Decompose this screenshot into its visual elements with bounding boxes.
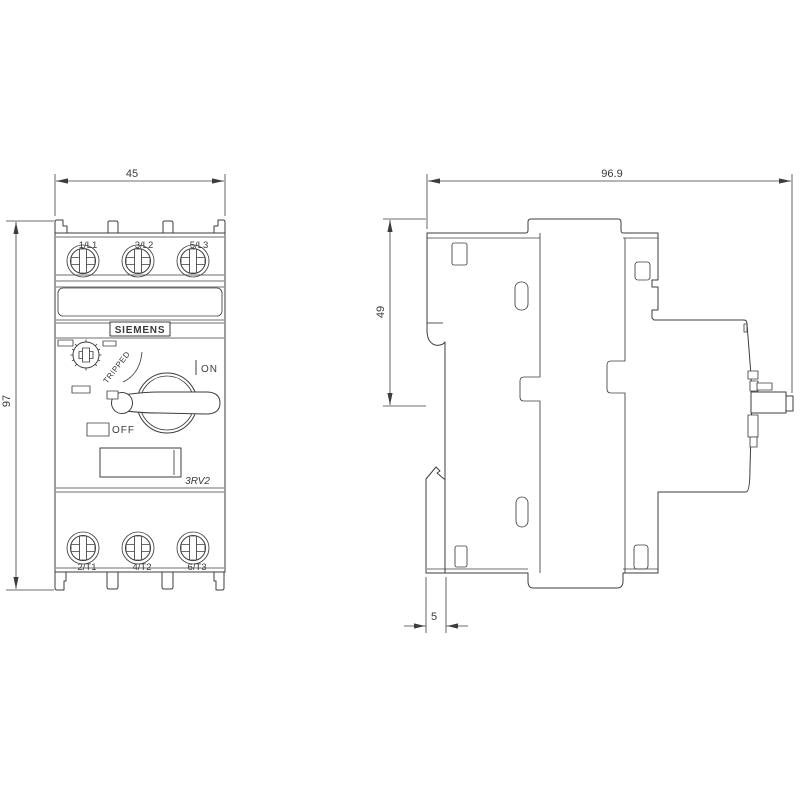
molding-hole [452, 243, 467, 265]
dim-din-depth: 5 [404, 577, 468, 633]
technical-drawing: 1/L1 3/L2 5/L3 SIEMENS [0, 0, 800, 800]
molding-hole [455, 546, 467, 567]
bottom-foot [107, 572, 118, 589]
din-rail-clip [427, 323, 445, 573]
setting-dial [71, 340, 102, 371]
dim-text: 97 [1, 395, 13, 407]
brand-text: SIEMENS [115, 325, 166, 336]
top-tab [214, 220, 225, 233]
dim-text: 49 [375, 306, 387, 318]
front-view: 1/L1 3/L2 5/L3 SIEMENS [55, 220, 225, 590]
reset-slot [72, 386, 90, 393]
side-view [426, 219, 793, 588]
terminal-screw [177, 532, 209, 564]
on-indicator: ON [196, 360, 218, 375]
top-tab [108, 221, 118, 233]
dim-side-depth: 96.9 [427, 168, 792, 393]
terminal-cover [58, 288, 222, 316]
terminal-screw [122, 532, 154, 564]
terminal-label: 2/T1 [77, 562, 96, 573]
knob-end-cap [786, 396, 793, 411]
siemens-logo: SIEMENS [110, 322, 170, 336]
dim-front-height: 97 [1, 221, 54, 590]
terminal-label: 6/T3 [187, 562, 206, 573]
dimension-drawing-page: 1/L1 3/L2 5/L3 SIEMENS [0, 0, 800, 800]
test-button [87, 423, 109, 436]
dim-text: 5 [431, 611, 437, 623]
rotary-handle [118, 392, 220, 414]
knob-side-profile [744, 324, 793, 447]
on-label: ON [201, 364, 218, 375]
molding-hole [634, 545, 648, 569]
side-body-outline [426, 219, 752, 588]
molding-hole [515, 282, 528, 310]
terminal-label: 5/L3 [190, 240, 209, 251]
molding-hole [516, 497, 528, 527]
terminal-label: 3/L2 [135, 240, 154, 251]
bottom-foot [55, 572, 66, 590]
handle-tip-tab [107, 391, 118, 399]
case-joint-line [607, 238, 625, 573]
top-tab [55, 220, 67, 233]
bottom-foot [214, 572, 224, 590]
label-window [100, 448, 181, 477]
bottom-foot [162, 572, 173, 589]
knob-shaft [751, 392, 786, 413]
dim-din-height: 49 [375, 219, 426, 406]
terminal-screws-bottom [67, 532, 209, 564]
top-tab [163, 221, 173, 233]
dim-front-width: 45 [55, 168, 225, 216]
terminal-label: 1/L1 [79, 240, 98, 251]
off-label: OFF [112, 425, 135, 436]
case-joint-line [520, 233, 540, 573]
vent-slot [103, 341, 116, 346]
model-label: 3RV2 [185, 476, 210, 487]
terminal-label: 4/T2 [132, 562, 151, 573]
vent-slot [58, 340, 73, 346]
terminal-screw [67, 532, 99, 564]
molding-hole [635, 262, 650, 280]
dim-text: 45 [126, 168, 138, 180]
off-indicator: OFF [112, 425, 135, 436]
dim-text: 96.9 [601, 168, 622, 180]
face-detail [744, 324, 747, 332]
